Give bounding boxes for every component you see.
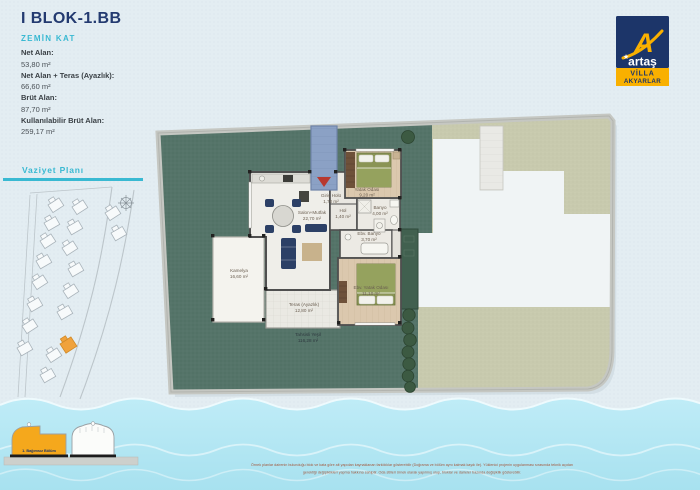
room-area: 1,70 m² <box>323 199 339 204</box>
room-area: 1,40 m² <box>335 214 351 219</box>
closet <box>392 230 401 258</box>
project-name-line2: AKYARLAR <box>624 78 661 85</box>
disclaimer-line2: gerektiği değişiklikleri yapma hakkına s… <box>303 471 521 475</box>
room-area: 11,10 m² <box>362 291 380 296</box>
disclaimer-line1: Örnek planlar dairenin bulunduğu blok ve… <box>251 463 573 467</box>
villa-outline <box>46 195 64 213</box>
villa-outline <box>109 223 127 241</box>
villa-outline <box>61 281 79 299</box>
villa-outline <box>60 238 78 256</box>
bathtub-icon <box>361 243 388 254</box>
villa-outline <box>65 217 83 235</box>
villa-outline <box>66 259 84 277</box>
stat-label: Net Alan: <box>21 48 171 59</box>
window <box>355 323 395 325</box>
bush-icon <box>405 382 416 393</box>
section-base <box>10 455 68 458</box>
villa-outline <box>25 294 43 312</box>
site-plan-rule <box>3 178 143 181</box>
stat-label: Kullanılabilir Brüt Alan: <box>21 116 171 127</box>
stat-value: 53,80 m² <box>21 59 171 70</box>
neighbor-walkway <box>480 126 503 190</box>
room-area: 16,60 m² <box>230 274 249 279</box>
stat-item: Kullanılabilir Brüt Alan: 259,17 m² <box>21 116 171 138</box>
room-label: Ebv. Yatak Odası <box>354 285 389 290</box>
bush-icon <box>403 358 415 370</box>
toilet-icon <box>391 216 398 225</box>
room-label: Giriş Holü <box>321 193 342 198</box>
page-title: I BLOK-1.BB <box>21 10 121 28</box>
room-area: 22,70 m² <box>303 216 322 221</box>
section-drawing: 1. Bağımsız Bölüm <box>2 418 147 470</box>
stat-item: Net Alan: 53,80 m² <box>21 48 171 70</box>
bed-icon <box>357 153 391 187</box>
neighbor-building <box>418 233 564 307</box>
garden-label: Tahsisli Yeşil <box>295 332 321 337</box>
neighbor-building <box>564 214 610 307</box>
chair-icon <box>265 199 274 207</box>
daybed-icon <box>305 224 327 232</box>
chair-icon <box>265 225 274 233</box>
room-label: Ebv. Banyo <box>357 231 381 236</box>
brand-logo: A ★ artaş VİLLA AKYARLAR <box>616 16 669 86</box>
window <box>249 182 251 228</box>
room-area: 12,80 m² <box>295 308 314 313</box>
room-kamelya <box>213 237 264 322</box>
nightstand <box>393 152 400 159</box>
stat-value: 259,17 m² <box>21 126 171 137</box>
room-area: 3,70 m² <box>361 237 377 242</box>
brochure-page: Giriş Holü 1,70 m² Salon+Mutfak 22,70 m²… <box>0 0 700 490</box>
section-ground <box>4 457 138 465</box>
room-label: Yatak Odası <box>355 187 380 192</box>
room-label: Hol <box>340 208 347 213</box>
room-area: 4,00 m² <box>372 211 388 216</box>
bush-icon <box>403 309 415 321</box>
section-ornament <box>91 422 95 426</box>
garden-wall <box>401 229 418 309</box>
brand-name: artaş <box>628 55 657 69</box>
disclaimer: Örnek planlar dairenin bulunduğu blok ve… <box>230 458 594 480</box>
villa-outline <box>103 203 121 221</box>
site-plan-minimap <box>8 185 158 400</box>
window <box>356 149 394 151</box>
room-area: 9,20 m² <box>359 193 375 198</box>
stat-label: Net Alan + Teras (Ayazlık): <box>21 71 171 82</box>
villa-outline <box>55 302 73 320</box>
floor-subtitle: ZEMİN KAT <box>21 34 76 43</box>
section-label: 1. Bağımsız Bölüm <box>22 449 56 453</box>
stat-item: Brüt Alan: 87,70 m² <box>21 93 171 115</box>
chair-icon <box>292 199 301 207</box>
stat-item: Net Alan + Teras (Ayazlık): 66,60 m² <box>21 71 171 93</box>
chair-icon <box>292 225 301 233</box>
room-label: Banyo <box>373 205 386 210</box>
garden-area: 116,28 m² <box>298 338 319 343</box>
room-label: Teras (Ayazlık) <box>289 302 320 307</box>
section-base <box>70 455 116 458</box>
villa-outline <box>15 338 33 356</box>
villa-outline <box>42 213 60 231</box>
villa-outline <box>38 231 56 249</box>
project-name-line1: VİLLA <box>630 70 654 78</box>
villa-outline <box>44 345 62 363</box>
sink-icon <box>345 234 351 240</box>
area-stats: Net Alan: 53,80 m² Net Alan + Teras (Aya… <box>21 48 171 138</box>
section-building <box>72 424 114 457</box>
rug <box>302 243 322 261</box>
highlighted-villa <box>58 334 77 354</box>
section-ornament <box>27 423 31 427</box>
villa-outline <box>38 365 56 383</box>
room-label: Salon+Mutfak <box>298 210 327 215</box>
bush-icon <box>402 346 414 358</box>
villa-outline <box>34 251 52 269</box>
bush-icon <box>402 322 414 334</box>
stat-value: 87,70 m² <box>21 104 171 115</box>
room-label: Kamelya <box>230 268 248 273</box>
sink-icon <box>259 176 264 181</box>
sofa-icon <box>281 238 296 269</box>
stat-label: Brüt Alan: <box>21 93 171 104</box>
sink-icon <box>390 200 399 207</box>
stat-value: 66,60 m² <box>21 81 171 92</box>
bush-icon <box>402 131 415 144</box>
site-plan-title: Vaziyet Planı <box>22 165 84 175</box>
bush-icon <box>402 370 414 382</box>
bush-icon <box>404 334 417 347</box>
villa-outline <box>70 197 88 215</box>
cooktop-icon <box>283 175 293 182</box>
